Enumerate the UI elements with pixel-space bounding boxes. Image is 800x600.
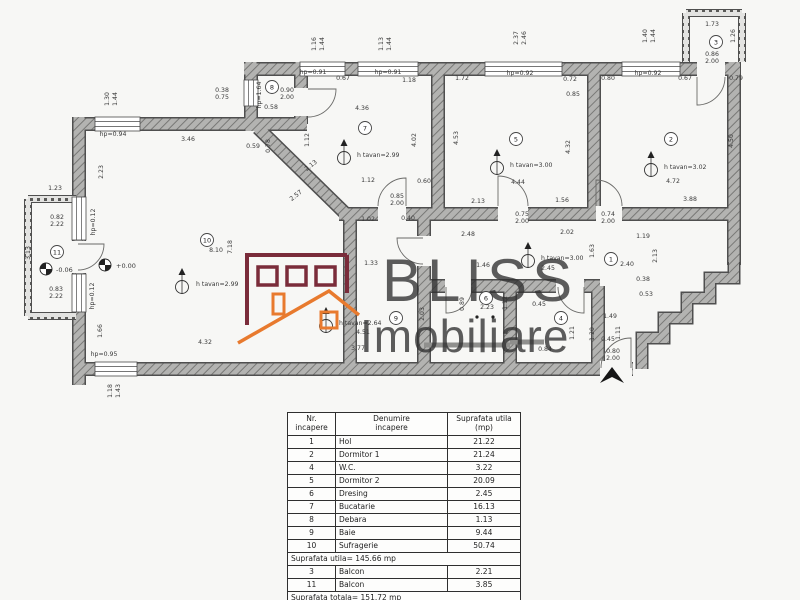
room-number: 5 bbox=[510, 133, 523, 146]
dimension-label: 1.49 bbox=[603, 313, 617, 320]
dimension-label: 3.46 bbox=[181, 136, 195, 143]
dimension-label: 2.13 bbox=[652, 249, 659, 263]
table-subtotal: Suprafata utila= 145.66 mp bbox=[288, 553, 521, 566]
dimension-label: 1.30 bbox=[104, 92, 111, 106]
table-row: 4W.C.3.22 bbox=[288, 462, 521, 475]
watermark-imobiliare: Imobiliare bbox=[360, 310, 569, 362]
table-cell: 6 bbox=[288, 488, 336, 501]
dimension-label: 2.00 bbox=[606, 355, 620, 362]
dimension-label: 4.53 bbox=[453, 131, 460, 145]
ceiling-height-label: h tavan=3.02 bbox=[664, 164, 707, 171]
level-label: -0.06 bbox=[56, 266, 73, 274]
dimension-label: 1.20 bbox=[589, 327, 596, 341]
dimension-label: 0.79 bbox=[729, 75, 743, 82]
dimension-label: 2.00 bbox=[390, 200, 404, 207]
dimension-label: 1.63 bbox=[589, 244, 596, 258]
logo-window-square bbox=[287, 267, 306, 285]
dimension-label: 4.50 bbox=[728, 134, 735, 148]
dimension-label: 0.86 bbox=[705, 51, 719, 58]
dimension-label: 1.02 bbox=[361, 216, 375, 223]
table-subtotal-cell: Suprafata utila= 145.66 mp bbox=[288, 553, 521, 566]
dimension-label: 1.18 bbox=[402, 77, 416, 84]
dimension-label: 0.74 bbox=[601, 211, 615, 218]
room-number-label: 2 bbox=[669, 135, 673, 143]
dimension-label: 2.02 bbox=[560, 229, 574, 236]
table-cell: Sufragerie bbox=[336, 540, 448, 553]
table-total-cell: Suprafata totala= 151.72 mp bbox=[288, 592, 521, 600]
table-row: 5Dormitor 220.09 bbox=[288, 475, 521, 488]
dimension-label: 2.00 bbox=[601, 218, 615, 225]
dimension-label: 1.11 bbox=[615, 326, 622, 340]
dimension-label: 0.45 bbox=[601, 336, 615, 343]
dimension-label: 2.22 bbox=[49, 293, 63, 300]
dimension-label: 4.02 bbox=[411, 133, 418, 147]
logo-window-square bbox=[258, 267, 277, 285]
table-cell: 21.24 bbox=[448, 449, 521, 462]
table-cell: 3 bbox=[288, 566, 336, 579]
dimension-label: 0.82 bbox=[50, 214, 64, 221]
table-cell: 9 bbox=[288, 527, 336, 540]
dimension-label: 0.72 bbox=[563, 76, 577, 83]
dimension-label: 2.00 bbox=[515, 218, 529, 225]
dimension-label: 2.22 bbox=[50, 221, 64, 228]
table-cell: Debara bbox=[336, 514, 448, 527]
table-cell: 21.22 bbox=[448, 436, 521, 449]
dimension-label: 2.46 bbox=[521, 31, 528, 45]
dimension-label: 1.72 bbox=[455, 75, 469, 82]
dimension-label: 3.88 bbox=[683, 196, 697, 203]
ceiling-marker: h tavan=2.99 bbox=[176, 268, 239, 294]
dimension-label: 2.48 bbox=[461, 231, 475, 238]
table-cell: 8 bbox=[288, 514, 336, 527]
table-cell: 9.44 bbox=[448, 527, 521, 540]
table-cell: Dresing bbox=[336, 488, 448, 501]
table-total: Suprafata totala= 151.72 mp bbox=[288, 592, 521, 600]
table-cell: Baie bbox=[336, 527, 448, 540]
dimension-label: 1.66 bbox=[97, 324, 104, 338]
window bbox=[95, 362, 137, 376]
table-cell: Bucatarie bbox=[336, 501, 448, 514]
dimension-label: 0.40 bbox=[401, 215, 415, 222]
area-table: Nr.incapereDenumireincapereSuprafata uti… bbox=[287, 412, 521, 600]
table-row: 7Bucatarie16.13 bbox=[288, 501, 521, 514]
table-cell: 50.74 bbox=[448, 540, 521, 553]
dimension-label: 2.57 bbox=[288, 189, 303, 203]
table-row: 9Baie9.44 bbox=[288, 527, 521, 540]
table-cell: 20.09 bbox=[448, 475, 521, 488]
dimension-label: 0.80 bbox=[606, 348, 620, 355]
dimension-label: hp=0.95 bbox=[91, 351, 118, 358]
logo-window-square bbox=[316, 267, 335, 285]
room-number-label: 7 bbox=[363, 124, 367, 132]
table-row: 3Balcon2.21 bbox=[288, 566, 521, 579]
dimension-label: 2.00 bbox=[705, 58, 719, 65]
room-number: 2 bbox=[665, 133, 678, 146]
dimension-label: 0.85 bbox=[390, 193, 404, 200]
dimension-label: 2.13 bbox=[471, 198, 485, 205]
table-row: 6Dresing2.45 bbox=[288, 488, 521, 501]
room-number: 11 bbox=[51, 246, 64, 259]
room-number: 7 bbox=[359, 122, 372, 135]
dimension-label: hp=0.91 bbox=[375, 69, 402, 76]
table-header-cell: Denumireincapere bbox=[336, 413, 448, 436]
dimension-label: hp=1.64 bbox=[256, 82, 263, 109]
dimension-label: 0.59 bbox=[246, 143, 260, 150]
dimension-label: hp=0.91 bbox=[300, 69, 327, 76]
level-marker: +0.00 bbox=[99, 259, 136, 271]
dimension-label: 4.72 bbox=[666, 178, 680, 185]
dimension-label: 0.67 bbox=[678, 75, 692, 82]
window bbox=[72, 274, 86, 312]
dimension-label: 0.75 bbox=[215, 94, 229, 101]
dimension-label: 1.44 bbox=[112, 92, 119, 106]
dimension-label: 4.32 bbox=[198, 339, 212, 346]
dimension-label: 1.23 bbox=[48, 185, 62, 192]
dimension-label: 0.53 bbox=[639, 291, 653, 298]
table-row: 2Dormitor 121.24 bbox=[288, 449, 521, 462]
room-number-label: 11 bbox=[53, 248, 61, 256]
floorplan-sheet: 1.161.441.131.442.372.461.401.441.301.44… bbox=[0, 0, 800, 600]
dimension-label: 0.90 bbox=[280, 87, 294, 94]
room-number: 3 bbox=[710, 36, 723, 49]
dimension-label: 1.44 bbox=[386, 37, 393, 51]
level-marker: -0.06 bbox=[40, 263, 73, 275]
dimension-label: hp=0.92 bbox=[507, 70, 534, 77]
dimension-label: 0.78 bbox=[265, 139, 272, 153]
table-row: 11Balcon3.85 bbox=[288, 579, 521, 592]
dimension-label: 1.44 bbox=[319, 37, 326, 51]
dimension-label: hp=0.12 bbox=[90, 209, 97, 236]
level-label: +0.00 bbox=[116, 262, 136, 270]
bliss-logo: BLISS Imobiliare bbox=[238, 247, 577, 362]
area-table-body: 1Hol21.222Dormitor 121.244W.C.3.225Dormi… bbox=[288, 436, 521, 600]
room-number-label: 8 bbox=[270, 83, 274, 91]
door-arc bbox=[697, 77, 725, 105]
dimension-label: 0.38 bbox=[636, 276, 650, 283]
dimension-label: 4.44 bbox=[511, 179, 525, 186]
dimension-label: 8.10 bbox=[209, 247, 223, 254]
dimension-label: 0.75 bbox=[515, 211, 529, 218]
dimension-label: 2.23 bbox=[98, 165, 105, 179]
table-cell: W.C. bbox=[336, 462, 448, 475]
dimension-label: 2.37 bbox=[513, 31, 520, 45]
dimension-label: 1.44 bbox=[650, 29, 657, 43]
table-cell: Hol bbox=[336, 436, 448, 449]
dimension-label: 1.16 bbox=[311, 37, 318, 51]
dimension-label: 4.32 bbox=[565, 140, 572, 154]
dimension-label: 0.80 bbox=[601, 75, 615, 82]
table-cell: 2.21 bbox=[448, 566, 521, 579]
table-header-cell: Nr.incapere bbox=[288, 413, 336, 436]
dimension-label: 0.58 bbox=[264, 104, 278, 111]
dimension-label: hp=0.12 bbox=[89, 283, 96, 310]
table-cell: 7 bbox=[288, 501, 336, 514]
ceiling-height-label: h tavan=3.00 bbox=[510, 162, 553, 169]
dimension-label: 0.60 bbox=[417, 178, 431, 185]
table-cell: 1.13 bbox=[448, 514, 521, 527]
area-table-header: Nr.incapereDenumireincapereSuprafata uti… bbox=[288, 413, 521, 436]
ceiling-height-label: h tavan=2.99 bbox=[357, 152, 400, 159]
room-number: 1 bbox=[605, 253, 618, 266]
dimension-label: 1.43 bbox=[115, 384, 122, 398]
floor-plan: 1.161.441.131.442.372.461.401.441.301.44… bbox=[0, 0, 800, 410]
room-number-label: 10 bbox=[203, 236, 211, 244]
dimension-label: 1.73 bbox=[705, 21, 719, 28]
table-cell: Dormitor 2 bbox=[336, 475, 448, 488]
room-number-label: 1 bbox=[609, 255, 613, 263]
dimension-label: 0.85 bbox=[566, 91, 580, 98]
table-cell: 2.45 bbox=[448, 488, 521, 501]
table-cell: 5 bbox=[288, 475, 336, 488]
room-number: 10 bbox=[201, 234, 214, 247]
table-cell: 10 bbox=[288, 540, 336, 553]
ceiling-marker: h tavan=2.99 bbox=[338, 139, 400, 165]
dimension-label: 1.19 bbox=[636, 233, 650, 240]
dimension-label: 1.21 bbox=[569, 326, 576, 340]
table-cell: 11 bbox=[288, 579, 336, 592]
dimension-label: 1.13 bbox=[378, 37, 385, 51]
dimension-label: 1.33 bbox=[364, 260, 378, 267]
table-row: 10Sufragerie50.74 bbox=[288, 540, 521, 553]
ceiling-marker: h tavan=3.00 bbox=[491, 149, 553, 175]
dimension-label: 1.12 bbox=[304, 133, 311, 147]
table-cell: 3.22 bbox=[448, 462, 521, 475]
table-cell: 2 bbox=[288, 449, 336, 462]
table-header-cell: Suprafata utila(mp) bbox=[448, 413, 521, 436]
dimension-label: 7.18 bbox=[227, 240, 234, 254]
dimension-label: 1.12 bbox=[361, 177, 375, 184]
table-cell: 3.85 bbox=[448, 579, 521, 592]
ceiling-marker: h tavan=3.02 bbox=[645, 151, 707, 177]
dimension-label: hp=0.94 bbox=[100, 131, 127, 138]
dimension-label: 4.36 bbox=[355, 105, 369, 112]
dimension-label: 1.26 bbox=[730, 29, 737, 43]
level-markers: -0.06+0.00 bbox=[40, 259, 136, 275]
dimension-label: 2.00 bbox=[280, 94, 294, 101]
table-cell: 1 bbox=[288, 436, 336, 449]
table-row: 8Debara1.13 bbox=[288, 514, 521, 527]
room-number-label: 5 bbox=[514, 135, 518, 143]
table-cell: Balcon bbox=[336, 566, 448, 579]
dimension-label: 0.83 bbox=[49, 286, 63, 293]
ceiling-height-label: h tavan=2.99 bbox=[196, 281, 239, 288]
table-cell: Dormitor 1 bbox=[336, 449, 448, 462]
logo-chimney bbox=[273, 294, 284, 314]
dimension-label: 1.18 bbox=[107, 384, 114, 398]
room-number-label: 3 bbox=[714, 38, 718, 46]
table-row: 1Hol21.22 bbox=[288, 436, 521, 449]
dimension-label: 0.38 bbox=[215, 87, 229, 94]
window bbox=[72, 197, 86, 240]
dimension-label: hp=0.92 bbox=[635, 70, 662, 77]
table-cell: Balcon bbox=[336, 579, 448, 592]
dimension-label: 1.56 bbox=[555, 197, 569, 204]
dimension-label: 2.40 bbox=[620, 261, 634, 268]
table-cell: 4 bbox=[288, 462, 336, 475]
door-arc bbox=[308, 89, 336, 117]
dimension-label: 3.13 bbox=[25, 246, 32, 260]
watermark-bliss: BLISS bbox=[382, 247, 577, 314]
dimension-label: 0.67 bbox=[336, 75, 350, 82]
room-number: 8 bbox=[266, 81, 279, 94]
window bbox=[95, 117, 140, 131]
dimension-label: 1.40 bbox=[642, 29, 649, 43]
logo-roof-line bbox=[238, 291, 359, 343]
table-cell: 16.13 bbox=[448, 501, 521, 514]
